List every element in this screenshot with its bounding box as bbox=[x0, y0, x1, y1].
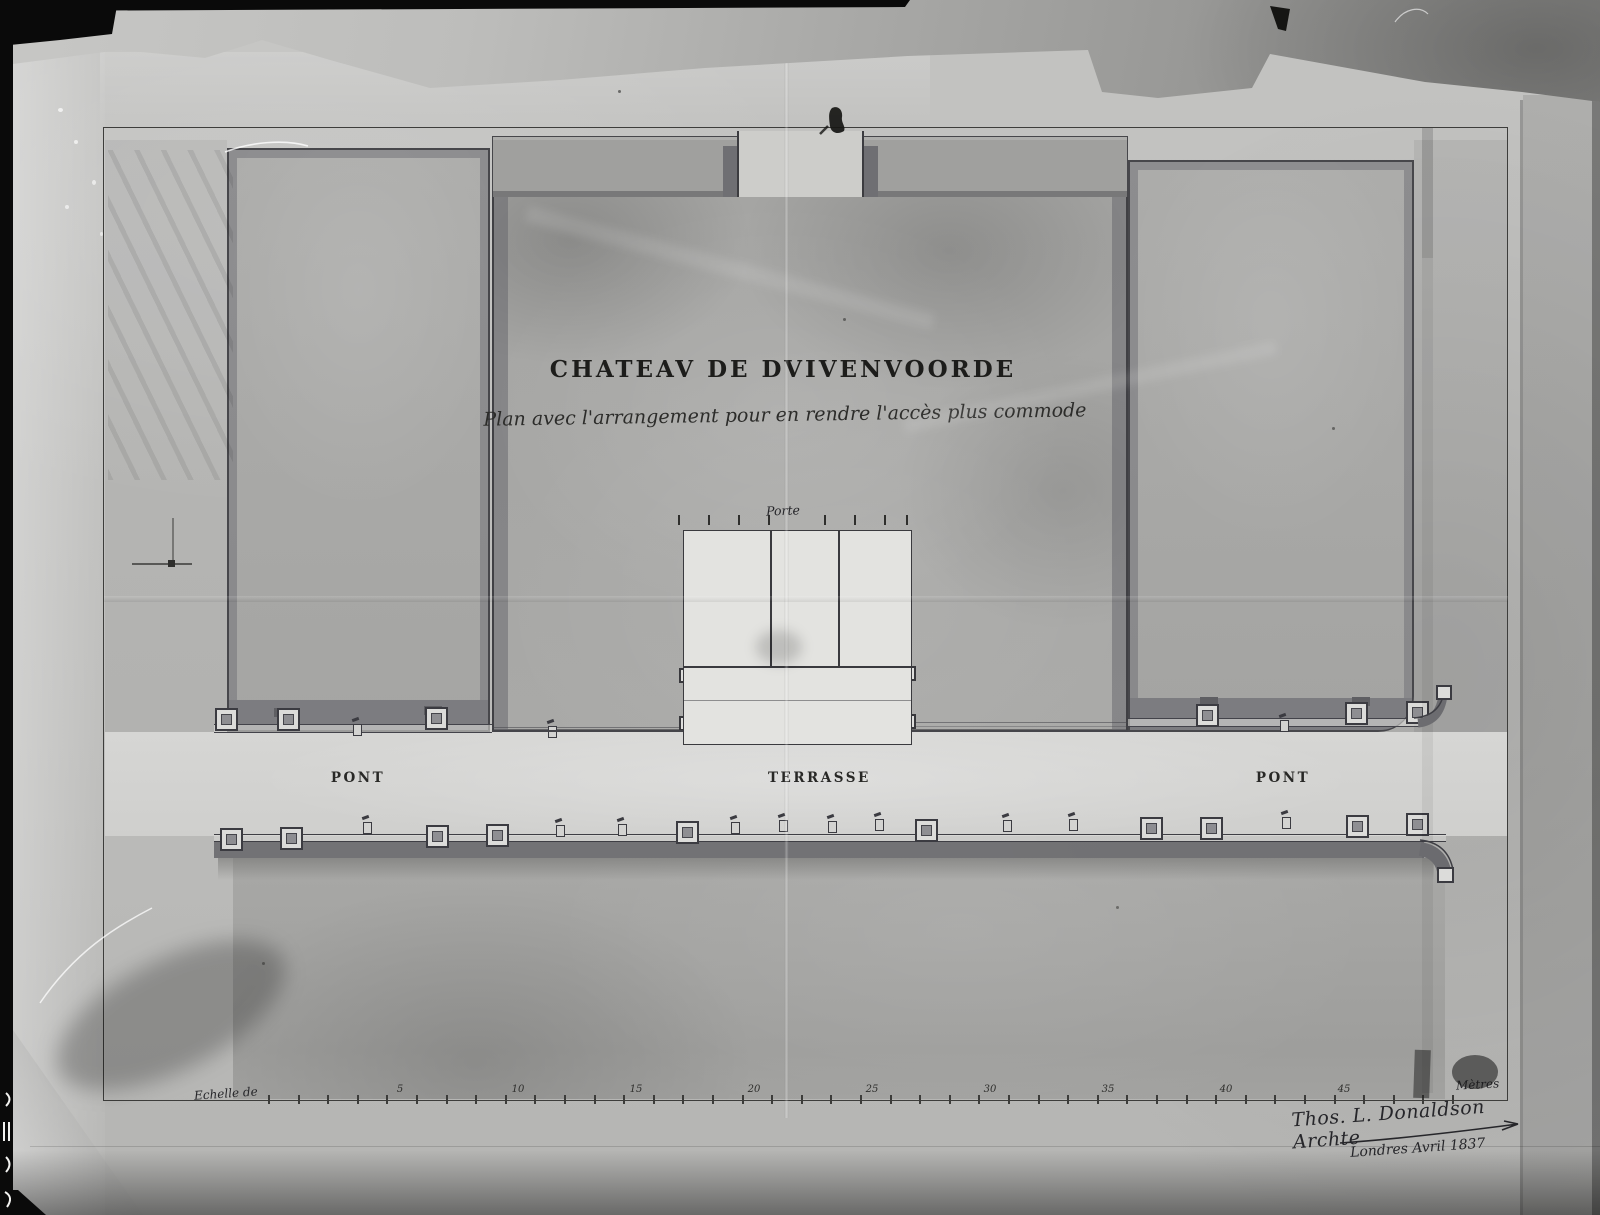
overlay-inkwork bbox=[0, 0, 1600, 1215]
photo-top-mark bbox=[1270, 6, 1290, 31]
upper-wall-corner-cap bbox=[1437, 686, 1451, 699]
signature-flourish bbox=[1340, 1121, 1518, 1143]
ink-blot-tail bbox=[820, 126, 828, 134]
ink-blot bbox=[829, 107, 844, 133]
dark-streak bbox=[1413, 1050, 1431, 1099]
lower-wall-corner-cap bbox=[1438, 868, 1453, 882]
photographed-architectural-plan: 51015202530354045 CHATEAV DE DVIVENVOORD… bbox=[0, 0, 1600, 1215]
scratch bbox=[1395, 9, 1428, 22]
registration-mark-dot bbox=[168, 560, 175, 567]
scratch bbox=[225, 142, 308, 152]
archive-scribble bbox=[4, 1093, 10, 1207]
dark-blob bbox=[1452, 1055, 1498, 1089]
scratch bbox=[40, 908, 152, 1003]
